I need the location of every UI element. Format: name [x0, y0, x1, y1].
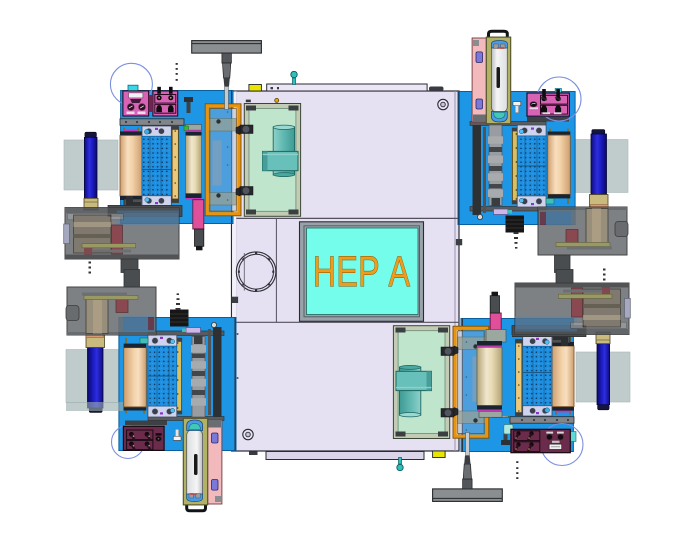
svg-text:HEPA: HEPA — [313, 249, 411, 297]
